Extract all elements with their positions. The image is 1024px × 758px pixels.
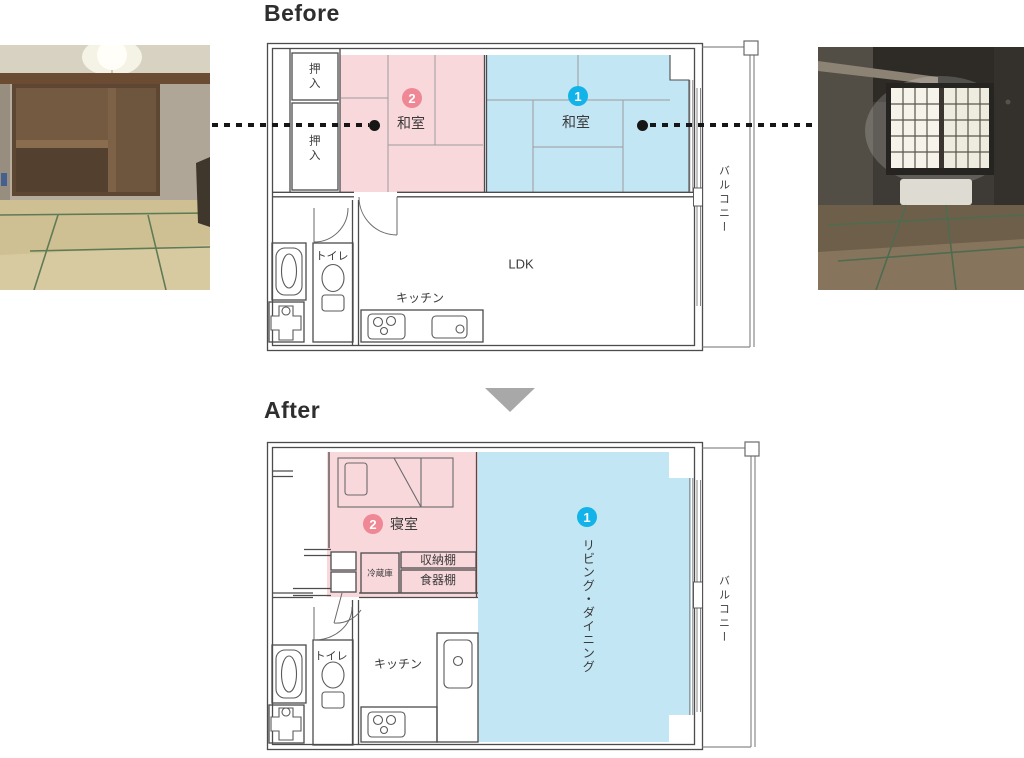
before-closet-top-label: 押入 bbox=[307, 63, 319, 92]
door-arcs bbox=[314, 197, 397, 242]
wall-outlet bbox=[1006, 100, 1011, 105]
before-room2-badge: 2 bbox=[402, 88, 422, 108]
shoji-window bbox=[865, 76, 1015, 186]
after-toilet-label: トイレ bbox=[315, 652, 348, 663]
before-room2-label: 和室 bbox=[397, 116, 425, 130]
bathtub bbox=[276, 248, 302, 295]
connector-dotted-line-left bbox=[212, 123, 369, 127]
connector-dot-left bbox=[369, 120, 380, 131]
after-storage-shelf-label: 収納棚 bbox=[420, 554, 456, 566]
photo-blue-mark bbox=[1, 173, 7, 186]
after-living-badge: 1 bbox=[577, 507, 597, 527]
before-room1-badge: 1 bbox=[568, 86, 588, 106]
after-balcony-label: バルコニー bbox=[718, 575, 729, 645]
before-ldk-label: LDK bbox=[508, 258, 533, 271]
after-floorplan bbox=[264, 440, 764, 752]
tatami-floor bbox=[818, 205, 1024, 290]
after-bedroom-label: 寝室 bbox=[390, 517, 418, 531]
kitchen-sink bbox=[432, 316, 467, 338]
connector-dot-right bbox=[637, 120, 648, 131]
photo-before-room2 bbox=[0, 45, 210, 290]
toilet-fixture bbox=[322, 265, 344, 312]
after-heading: After bbox=[264, 397, 320, 424]
kitchen-stove bbox=[368, 712, 405, 737]
bathtub bbox=[276, 650, 302, 698]
after-cupboard-label: 食器棚 bbox=[420, 574, 456, 586]
before-heading: Before bbox=[264, 0, 340, 27]
window-lines bbox=[690, 478, 703, 715]
tatami-floor bbox=[0, 200, 210, 290]
after-kitchen-label: キッチン bbox=[374, 658, 422, 670]
arrow-down-icon bbox=[485, 388, 535, 412]
balcony-railing bbox=[703, 41, 759, 347]
balcony-railing bbox=[703, 442, 760, 747]
before-balcony-label: バルコニー bbox=[718, 165, 729, 235]
radiator-panel bbox=[900, 179, 972, 205]
before-toilet-label: トイレ bbox=[316, 252, 349, 263]
kitchen-stove bbox=[368, 314, 405, 339]
washer-pan bbox=[271, 306, 301, 340]
door-arcs bbox=[314, 593, 361, 640]
connector-dotted-line-right bbox=[650, 123, 818, 127]
kitchen-sink bbox=[444, 640, 472, 688]
before-floorplan bbox=[264, 40, 764, 356]
page: Before After bbox=[0, 0, 1024, 758]
window-lines bbox=[690, 80, 703, 306]
before-room1-label: 和室 bbox=[562, 115, 590, 129]
before-kitchen-label: キッチン bbox=[396, 292, 444, 304]
washer-pan bbox=[271, 708, 301, 740]
wood-lintel bbox=[0, 73, 210, 84]
open-closet bbox=[12, 84, 160, 196]
toilet-fixture bbox=[322, 662, 344, 708]
before-closet-bottom-label: 押入 bbox=[307, 135, 319, 164]
after-bedroom-badge: 2 bbox=[363, 514, 383, 534]
door-track bbox=[196, 157, 210, 227]
after-refrigerator-label: 冷蔵庫 bbox=[367, 569, 393, 578]
after-living-label: リビング・ダイニング bbox=[581, 539, 594, 674]
photo-before-room1 bbox=[818, 47, 1024, 290]
